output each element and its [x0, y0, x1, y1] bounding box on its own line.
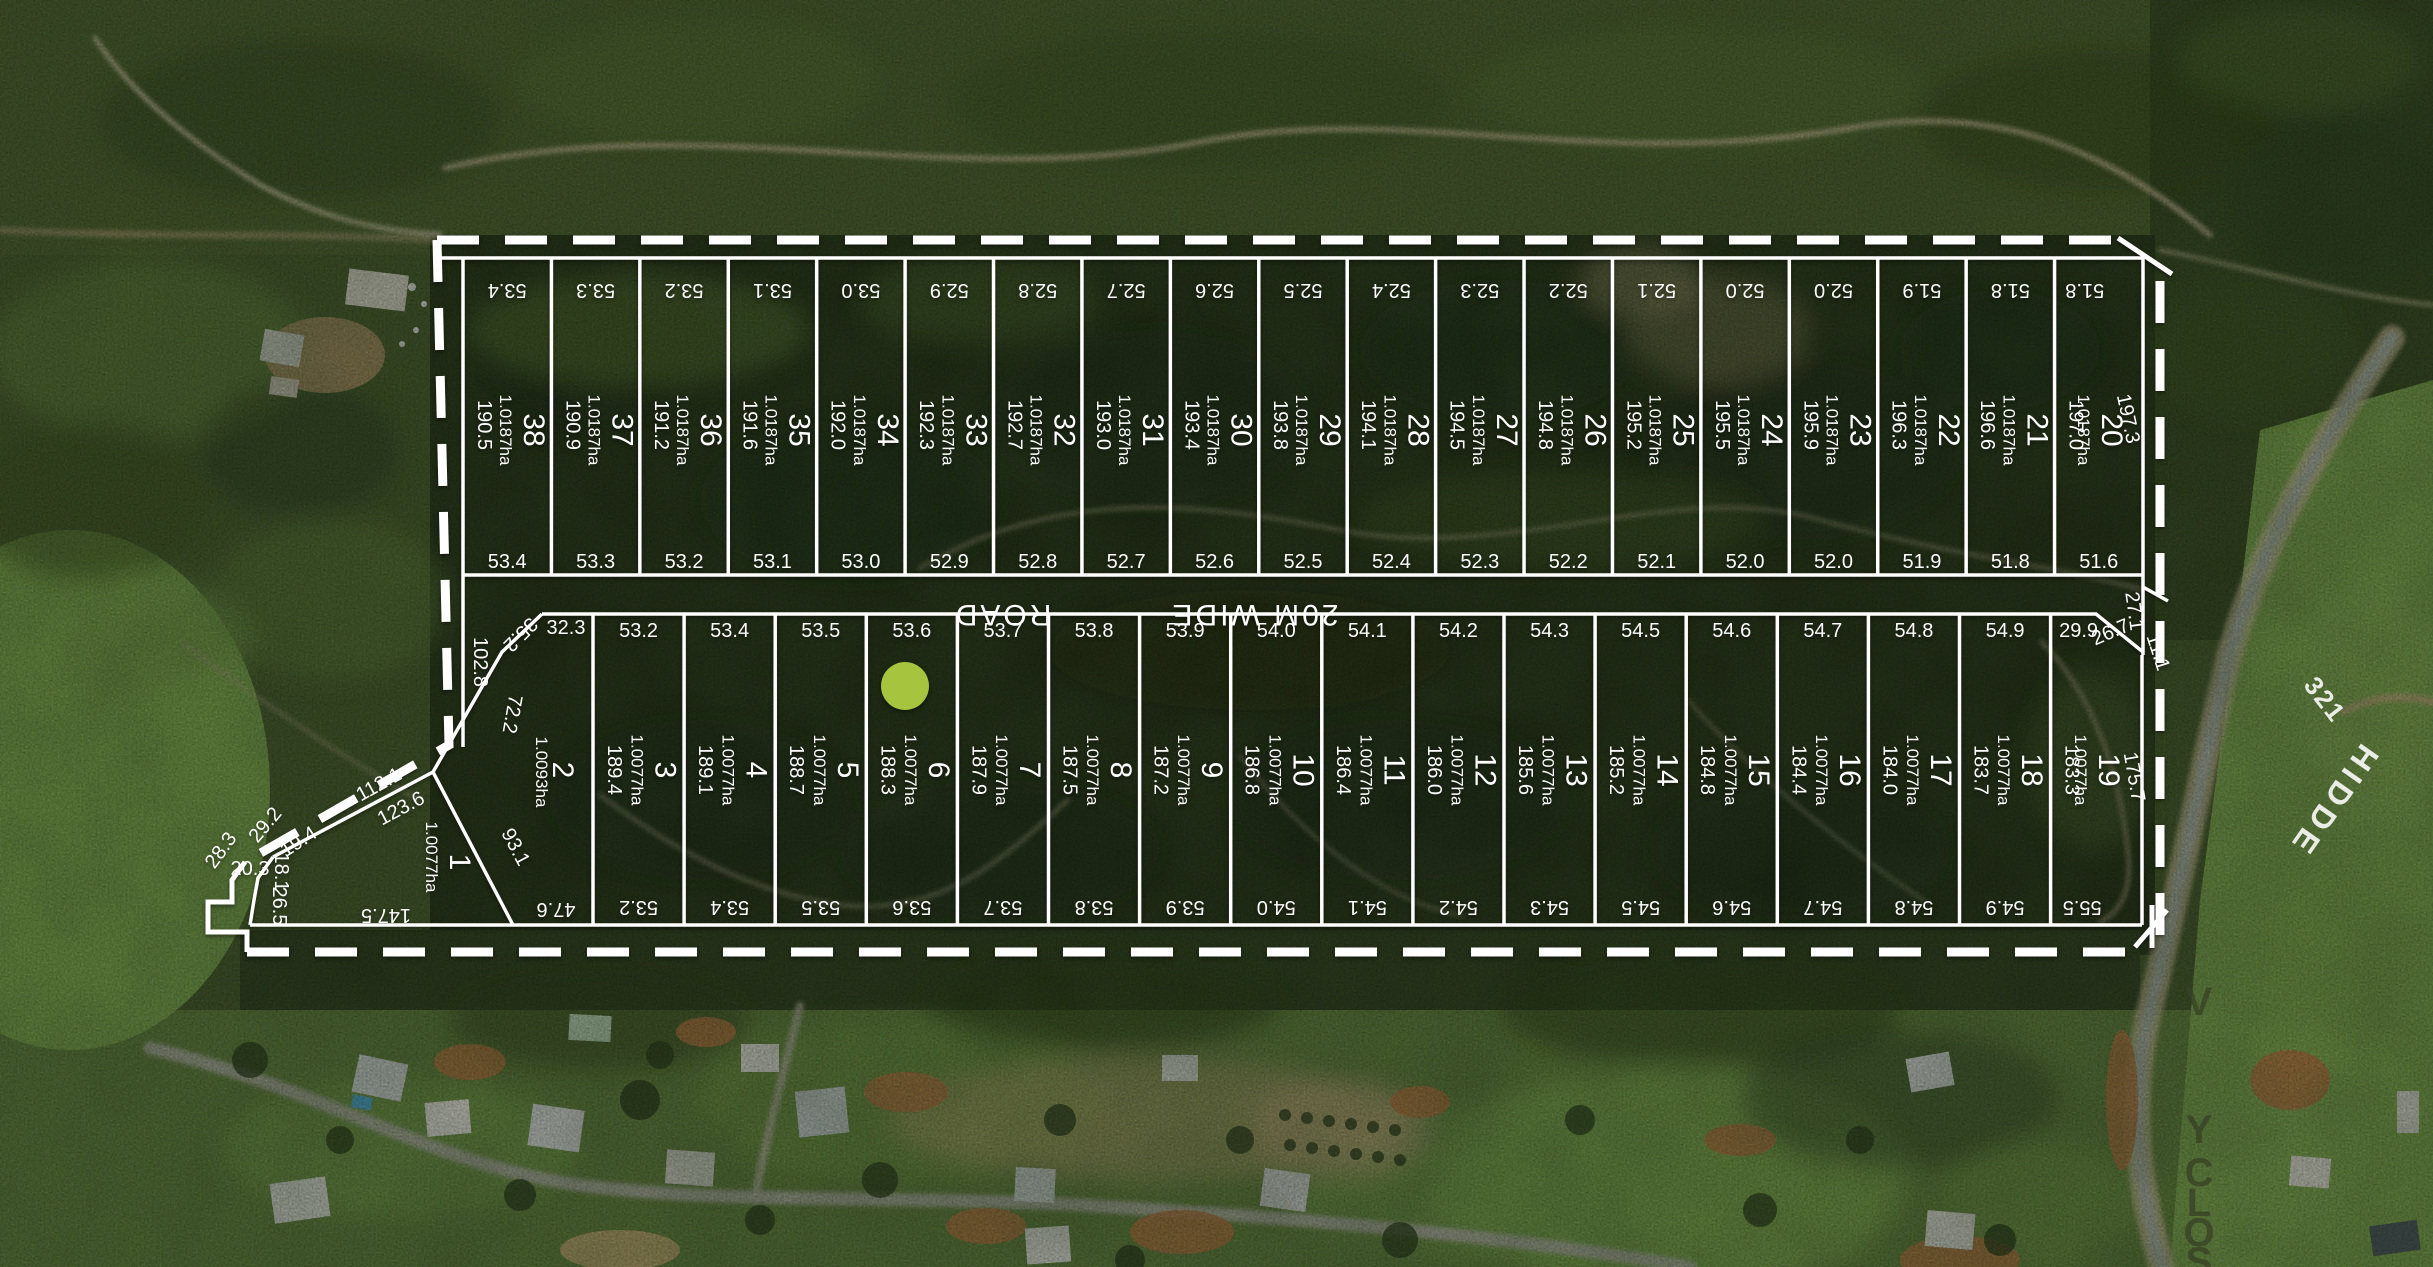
lot-dim-side: 193.4	[1180, 400, 1202, 450]
lot-area: 1.0077ha	[719, 735, 738, 806]
lot-dim-bottom: 53.9	[1166, 896, 1205, 918]
lot-dim-bottom: 53.4	[710, 896, 749, 918]
lot-number: 12	[1468, 753, 1501, 786]
lot-dim-top: 52.4	[1372, 279, 1411, 301]
lot-dim-side: 192.3	[915, 400, 937, 450]
lot-dim-side: 191.6	[738, 400, 760, 450]
lot-number: 8	[1104, 762, 1137, 779]
street-name-letter: V	[2186, 980, 2213, 1024]
lot-number: 4	[740, 762, 773, 779]
lot-dim-side: 186.4	[1332, 745, 1354, 795]
lot-number: 33	[959, 413, 992, 446]
lot-area: 1.0187ha	[1823, 395, 1842, 466]
lot-dim-bottom: 54.6	[1712, 896, 1751, 918]
lot-number: 10	[1286, 753, 1319, 786]
lot-area: 1.0077ha	[1083, 735, 1102, 806]
lot-number: 27	[1490, 413, 1523, 446]
lot-dim-side: 195.5	[1711, 400, 1733, 450]
lot-dim-top: 52.3	[1460, 279, 1499, 301]
lot-number: 20	[2095, 413, 2128, 446]
lot-dim-top: 53.6	[892, 620, 931, 642]
lot-dim-top: 54.6	[1712, 620, 1751, 642]
lot-dim-top: 53.9	[1166, 620, 1205, 642]
lot-dim-side: 193.0	[1092, 400, 1114, 450]
boundary-dim-label: 20.3	[231, 858, 270, 880]
lot-dim-top: 53.3	[576, 279, 615, 301]
lot-dim-side: 185.6	[1514, 745, 1536, 795]
lot-dim-top: 52.0	[1814, 279, 1853, 301]
lot-dim-bottom: 52.9	[930, 551, 969, 573]
lot-dim-bottom: 52.6	[1195, 551, 1234, 573]
selected-lot-marker	[881, 662, 929, 710]
lot-number: 16	[1833, 753, 1866, 786]
lot-dim-top: 52.1	[1637, 279, 1676, 301]
lot-number: 36	[694, 413, 727, 446]
lot-dim-bottom: 53.4	[488, 551, 527, 573]
lot-dim-top: 53.8	[1075, 620, 1114, 642]
lot-dim-bottom: 52.0	[1726, 551, 1765, 573]
lot-dim-bottom: 53.6	[892, 896, 931, 918]
lot-area: 1.0187ha	[1734, 395, 1753, 466]
lot-dim-top: 52.7	[1107, 279, 1146, 301]
lot-area: 1.0187ha	[1911, 395, 1930, 466]
subdivision-plan-screenshot: 321 HIDDE VYCLOS	[0, 0, 2433, 1267]
lot-area: 1.0187ha	[761, 395, 780, 466]
lot-dim-side: 193.8	[1269, 400, 1291, 450]
lot-dim-bottom: 51.8	[1991, 551, 2030, 573]
lot-dim-side: 186.0	[1423, 745, 1445, 795]
lot-number: 15	[1742, 753, 1775, 786]
lot-dim-top: 32.3	[547, 617, 586, 639]
lot-dim-bottom: 52.8	[1018, 551, 1057, 573]
lot-area: 1.0187ha	[1646, 395, 1665, 466]
lot-dim-side: 194.5	[1446, 400, 1468, 450]
lot-dim-bottom: 53.0	[841, 551, 880, 573]
lot-number: 11	[1377, 754, 1410, 785]
lot-dim-top: 53.7	[983, 620, 1022, 642]
lot-area: 1.0077ha	[2071, 735, 2090, 806]
lot-area: 1.0077ha	[422, 822, 441, 893]
lot-dim-top: 52.8	[1018, 279, 1057, 301]
lot-dim-top: 53.2	[619, 620, 658, 642]
lot-area: 1.0187ha	[1292, 395, 1311, 466]
lot-dim-bottom: 53.5	[801, 896, 840, 918]
lot-number: 37	[606, 413, 639, 446]
lot-dim-side: 191.2	[650, 400, 672, 450]
lot-dim-side: 195.2	[1622, 400, 1644, 450]
lot-dim-side: 192.7	[1004, 400, 1026, 450]
lot-dim-top: 54.2	[1439, 620, 1478, 642]
lot-dim-bottom: 54.9	[1986, 896, 2025, 918]
lot-dim-top: 54.0	[1257, 620, 1296, 642]
lot-dim-bottom: 147.5	[361, 904, 411, 926]
lot-dim-top: 53.0	[841, 279, 880, 301]
lot-dim-top: 53.1	[753, 279, 792, 301]
lot-dim-bottom: 52.1	[1637, 551, 1676, 573]
lot-dim-side: 184.4	[1787, 745, 1809, 795]
lot-number: 3	[649, 762, 682, 779]
lot-number: 24	[1755, 413, 1788, 446]
lot-area: 1.0077ha	[1630, 735, 1649, 806]
lot-number: 28	[1401, 413, 1434, 446]
lot-dim-side: 196.6	[1976, 400, 1998, 450]
lot-dim-bottom: 52.0	[1814, 551, 1853, 573]
lot-dim-bottom: 54.5	[1621, 896, 1660, 918]
lot-dim-bottom: 51.9	[1902, 551, 1941, 573]
lot-number: 9	[1195, 762, 1228, 779]
lot-dim-side: 189.1	[694, 745, 716, 795]
lot-area: 1.0187ha	[496, 395, 515, 466]
lot-dim-bottom: 55.5	[2063, 896, 2102, 918]
lot-area: 1.0187ha	[938, 395, 957, 466]
lot-dim-top: 54.9	[1986, 620, 2025, 642]
lot-area: 1.0077ha	[810, 735, 829, 806]
lot-area: 1.0187ha	[1027, 395, 1046, 466]
lot-dim-bottom: 54.1	[1348, 896, 1387, 918]
lot-area: 1.0187ha	[1999, 395, 2018, 466]
lot-area: 1.0077ha	[628, 735, 647, 806]
lot-dim-bottom: 53.7	[983, 896, 1022, 918]
lot-dim-top: 54.1	[1348, 620, 1387, 642]
lot-dim-side: 194.1	[1357, 400, 1379, 450]
lot-number: 22	[1932, 413, 1965, 446]
lot-dim-side: 184.0	[1878, 745, 1900, 795]
lot-area: 1.0187ha	[850, 395, 869, 466]
lot-dim-bottom: 54.3	[1530, 896, 1569, 918]
lot-number: 7	[1013, 762, 1046, 779]
street-name-vertical: VYCLOS	[2183, 980, 2214, 1267]
lot-dim-side: 185.2	[1605, 745, 1627, 795]
lot-number: 30	[1225, 413, 1258, 446]
lot-area: 1.0187ha	[1557, 395, 1576, 466]
lot-area: 1.0187ha	[1469, 395, 1488, 466]
lot-area: 1.0187ha	[2074, 395, 2093, 466]
lot-dim-top: 52.9	[930, 279, 969, 301]
boundary-dim-label: 26.5	[268, 887, 290, 926]
lot-dim-bottom: 51.6	[2079, 551, 2118, 573]
lot-number: 23	[1844, 413, 1877, 446]
lot-number: 1	[443, 854, 476, 871]
lot-dim-bottom: 54.7	[1803, 896, 1842, 918]
lot-number: 5	[831, 762, 864, 779]
lot-dim-side: 194.8	[1534, 400, 1556, 450]
lot-dim-bottom: 52.7	[1107, 551, 1146, 573]
lot-dim-top: 52.0	[1726, 279, 1765, 301]
lot-area: 1.0077ha	[1721, 735, 1740, 806]
lot-area: 1.0187ha	[1204, 395, 1223, 466]
lot-area: 1.0077ha	[1174, 735, 1193, 806]
lot-area: 1.0077ha	[1447, 735, 1466, 806]
lot-dim-side: 188.3	[876, 745, 898, 795]
lot-dim-side: 183.7	[1970, 745, 1992, 795]
lot-dim-bottom: 53.8	[1075, 896, 1114, 918]
lot-area: 1.0077ha	[1903, 735, 1922, 806]
lot-dim-bottom: 54.2	[1439, 896, 1478, 918]
lot-dim-top: 52.6	[1195, 279, 1234, 301]
lot-dim-bottom: 54.8	[1894, 896, 1933, 918]
lot-dim-side: 186.8	[1241, 745, 1263, 795]
lot-dim-top: 51.9	[1902, 279, 1941, 301]
lot-number: 32	[1048, 413, 1081, 446]
street-name-letter: Y	[2186, 1108, 2213, 1152]
lot-number: 38	[517, 413, 550, 446]
lot-area: 1.0187ha	[673, 395, 692, 466]
lot-area: 1.0187ha	[1115, 395, 1134, 466]
lot-dim-side: 187.9	[967, 745, 989, 795]
lot-dim-top: 53.4	[710, 620, 749, 642]
lot-dim-top: 53.2	[665, 279, 704, 301]
lot-dim-side: 184.8	[1696, 745, 1718, 795]
lot-dim-side: 187.5	[1059, 745, 1081, 795]
lot-dim-bottom: 54.0	[1257, 896, 1296, 918]
lot-number: 13	[1560, 753, 1593, 786]
lot-area: 1.0077ha	[992, 735, 1011, 806]
lot-dim-top: 53.4	[488, 279, 527, 301]
lot-dim-side: 192.0	[827, 400, 849, 450]
lot-area: 1.0077ha	[1994, 735, 2013, 806]
lot-dim-bottom: 53.2	[619, 896, 658, 918]
lot-dim-side: 195.9	[1799, 400, 1821, 450]
lot-dim-bottom: 52.2	[1549, 551, 1588, 573]
lot-dim-top: 51.8	[2065, 279, 2104, 301]
lot-dim-top: 54.7	[1803, 620, 1842, 642]
lot-dim-top: 54.3	[1530, 620, 1569, 642]
lot-dim-top: 52.2	[1549, 279, 1588, 301]
lot-number: 31	[1136, 413, 1169, 446]
street-name-letter: S	[2186, 1240, 2213, 1267]
lot-dim-side: 188.7	[785, 745, 807, 795]
lot-area: 1.0077ha	[901, 735, 920, 806]
lot-area: 1.0077ha	[1539, 735, 1558, 806]
lot-dim-top: 53.5	[801, 620, 840, 642]
lot-number: 17	[1924, 753, 1957, 786]
lot-dim-bottom: 52.3	[1460, 551, 1499, 573]
lot-dim-top: 54.5	[1621, 620, 1660, 642]
lot-dim-side: 190.9	[561, 400, 583, 450]
lot-dim-top: 52.5	[1284, 279, 1323, 301]
lot-area: 1.0077ha	[1356, 735, 1375, 806]
lot-dim-side: 196.3	[1888, 400, 1910, 450]
lot-number: 6	[922, 762, 955, 779]
lot-number: 21	[2020, 413, 2053, 446]
lot-number: 25	[1667, 413, 1700, 446]
lot-area: 1.0077ha	[1265, 735, 1284, 806]
lot-dim-bottom: 53.2	[665, 551, 704, 573]
lot-number: 18	[2015, 753, 2048, 786]
lot-dim-top: 51.8	[1991, 279, 2030, 301]
lot-dim-bottom: 53.1	[753, 551, 792, 573]
lot-number: 34	[871, 413, 904, 446]
lot-area: 1.0187ha	[585, 395, 604, 466]
lot-area: 1.0093ha	[532, 737, 551, 808]
boundary-dim-label: 102.8	[469, 637, 491, 687]
lot-dim-side: 187.2	[1150, 745, 1172, 795]
lot-area: 1.0077ha	[1812, 735, 1831, 806]
lot-number: 26	[1578, 413, 1611, 446]
lot-dim-bottom: 52.5	[1284, 551, 1323, 573]
lot-area: 1.0187ha	[1380, 395, 1399, 466]
lot-number: 19	[2092, 753, 2125, 786]
lot-dim-side: 189.4	[603, 745, 625, 795]
lot-dim-top: 54.8	[1894, 620, 1933, 642]
lot-dim-bottom: 47.6	[537, 898, 576, 920]
lot-dim-bottom: 53.3	[576, 551, 615, 573]
lot-number: 14	[1651, 753, 1684, 786]
lot-number: 29	[1313, 413, 1346, 446]
lot-dim-bottom: 52.4	[1372, 551, 1411, 573]
lot-dim-side: 190.5	[473, 400, 495, 450]
lot-number: 35	[782, 413, 815, 446]
aerial-basemap: 321 HIDDE VYCLOS	[0, 0, 2433, 1267]
